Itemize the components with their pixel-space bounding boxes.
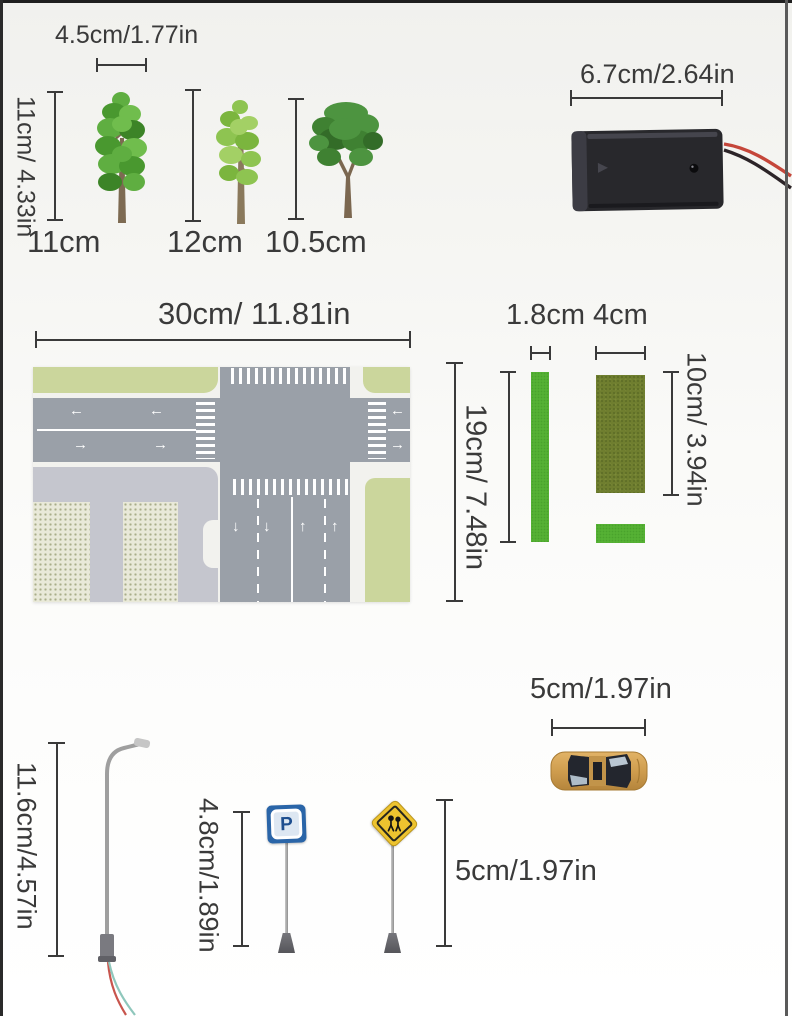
parking-spot-texture <box>123 502 178 602</box>
strip-wide-width-label: 4cm <box>593 300 648 330</box>
strip-narrow-width-label: 1.8cm <box>506 300 585 330</box>
measure-tick <box>663 494 679 496</box>
crosswalk-right <box>368 402 386 459</box>
road-arrow-up-icon: ↑ <box>299 519 307 534</box>
measure-tick <box>233 945 249 947</box>
measure-tick <box>35 331 37 348</box>
measure-tick <box>47 219 63 221</box>
measure-tick <box>145 58 147 72</box>
battery-width-label: 6.7cm/2.64in <box>580 60 735 88</box>
image-border-top <box>0 0 792 3</box>
measure-tick <box>595 346 597 360</box>
measure-tick <box>185 89 201 91</box>
grass-mat-height-measure-line <box>671 372 673 496</box>
measure-tick <box>549 346 551 360</box>
road-arrow-left-icon: ← <box>149 403 164 418</box>
road-center-line <box>37 429 196 431</box>
grass-mat-wide <box>596 375 645 493</box>
parking-sign-base <box>278 933 295 953</box>
strip-height-measure-line <box>508 372 510 543</box>
tree-width-measure-line <box>97 64 147 66</box>
road-arrow-left-icon: ← <box>69 403 84 418</box>
road-arrow-down-icon: ↓ <box>263 519 271 534</box>
road-mat-width-label: 30cm/ 11.81in <box>158 298 350 331</box>
measure-tick <box>500 541 516 543</box>
parking-spot-texture <box>33 502 90 602</box>
parking-sign-icon: P <box>266 804 306 843</box>
battery-box-icon <box>568 124 792 220</box>
pedestrians-icon <box>384 815 406 833</box>
measure-tick <box>185 220 201 222</box>
measure-tick <box>570 90 572 106</box>
measure-tick <box>233 811 250 813</box>
mat-lawn-top-left <box>33 367 218 393</box>
strip-wide-measure-line <box>596 352 645 354</box>
measure-tick <box>551 719 553 736</box>
parking-entrance <box>203 520 219 568</box>
measure-tick <box>644 346 646 360</box>
lane-dash-line <box>324 499 326 602</box>
measure-tick <box>446 362 463 364</box>
road-center-line <box>388 429 410 431</box>
road-mat-height-measure-line <box>454 363 456 602</box>
tree3-measure-line <box>295 99 297 220</box>
parking-sign-pole <box>285 840 288 938</box>
tree3-size-label: 10.5cm <box>265 226 367 259</box>
road-arrow-right-icon: → <box>73 437 88 452</box>
image-border-left <box>0 0 3 1016</box>
tree-width-label: 4.5cm/1.77in <box>55 22 198 48</box>
measure-tick <box>48 955 64 957</box>
road-mat-width-measure-line <box>36 339 411 341</box>
road-divider-line <box>291 497 293 602</box>
image-border-right <box>785 0 788 1016</box>
parking-sign-letter: P <box>280 814 293 833</box>
road-arrow-right-icon: → <box>153 437 168 452</box>
tree1-size-label: 11cm <box>27 226 101 259</box>
measure-tick <box>409 331 411 348</box>
measure-tick <box>436 799 453 801</box>
mat-lawn-bottom-right <box>365 478 410 602</box>
product-dimension-diagram: 4.5cm/1.77in 11cm/ 4.33in <box>0 0 792 1016</box>
lane-dash-line <box>257 499 259 602</box>
road-mat: ← ← → → ← → ↓ ↓ ↑ ↑ <box>33 367 410 602</box>
crosswalk-bottom <box>233 479 350 495</box>
crosswalk-left <box>196 402 215 459</box>
strip-narrow-measure-line <box>531 352 550 354</box>
car-width-label: 5cm/1.97in <box>530 674 672 704</box>
lamp-measure-line <box>56 743 58 957</box>
pedestrian-sign-base <box>384 933 401 953</box>
mat-lawn-top-right <box>363 367 410 393</box>
tree-height-label: 11cm/ 4.33in <box>12 96 38 228</box>
measure-tick <box>530 346 532 360</box>
road-arrow-right-icon: → <box>390 437 405 452</box>
toy-car-icon <box>549 747 649 795</box>
pedestrian-sign-panel <box>375 804 413 842</box>
tree2-size-label: 12cm <box>167 226 243 259</box>
pedestrian-sign-icon <box>370 799 419 848</box>
measure-tick <box>500 371 516 373</box>
road-arrow-down-icon: ↓ <box>232 519 240 534</box>
road-mat-height-label: 19cm/ 7.48in <box>460 404 490 574</box>
grass-mat-height-label: 10cm/ 3.94in <box>682 352 710 502</box>
street-lamp-icon <box>88 736 160 1016</box>
model-tree-2-icon <box>202 97 276 225</box>
measure-tick <box>288 98 304 100</box>
measure-tick <box>644 719 646 736</box>
parking-sign-measure-line <box>241 812 243 947</box>
lamp-height-label: 11.6cm/4.57in <box>12 762 40 937</box>
measure-tick <box>47 91 63 93</box>
measure-tick <box>288 218 304 220</box>
model-tree-1-icon <box>84 90 158 224</box>
measure-tick <box>48 742 65 744</box>
battery-measure-line <box>571 97 723 99</box>
parking-sign-panel: P <box>270 808 302 839</box>
pedestrian-sign-height-label: 5cm/1.97in <box>455 856 597 886</box>
measure-tick <box>663 371 679 373</box>
measure-tick <box>721 90 723 106</box>
parking-sign-height-label: 4.8cm/1.89in <box>194 798 222 950</box>
model-tree-3-icon <box>305 97 387 219</box>
pedestrian-sign-measure-line <box>444 800 446 947</box>
car-measure-line <box>552 727 645 729</box>
measure-tick <box>436 945 452 947</box>
pedestrian-sign-pole <box>391 844 394 938</box>
road-arrow-up-icon: ↑ <box>331 519 339 534</box>
grass-strip-narrow <box>531 372 549 542</box>
tree2-measure-line <box>192 90 194 222</box>
grass-strip-small <box>596 524 645 543</box>
road-arrow-left-icon: ← <box>390 403 405 418</box>
tree1-measure-line <box>54 92 56 220</box>
crosswalk-top <box>231 368 346 384</box>
measure-tick <box>96 58 98 72</box>
measure-tick <box>446 600 463 602</box>
